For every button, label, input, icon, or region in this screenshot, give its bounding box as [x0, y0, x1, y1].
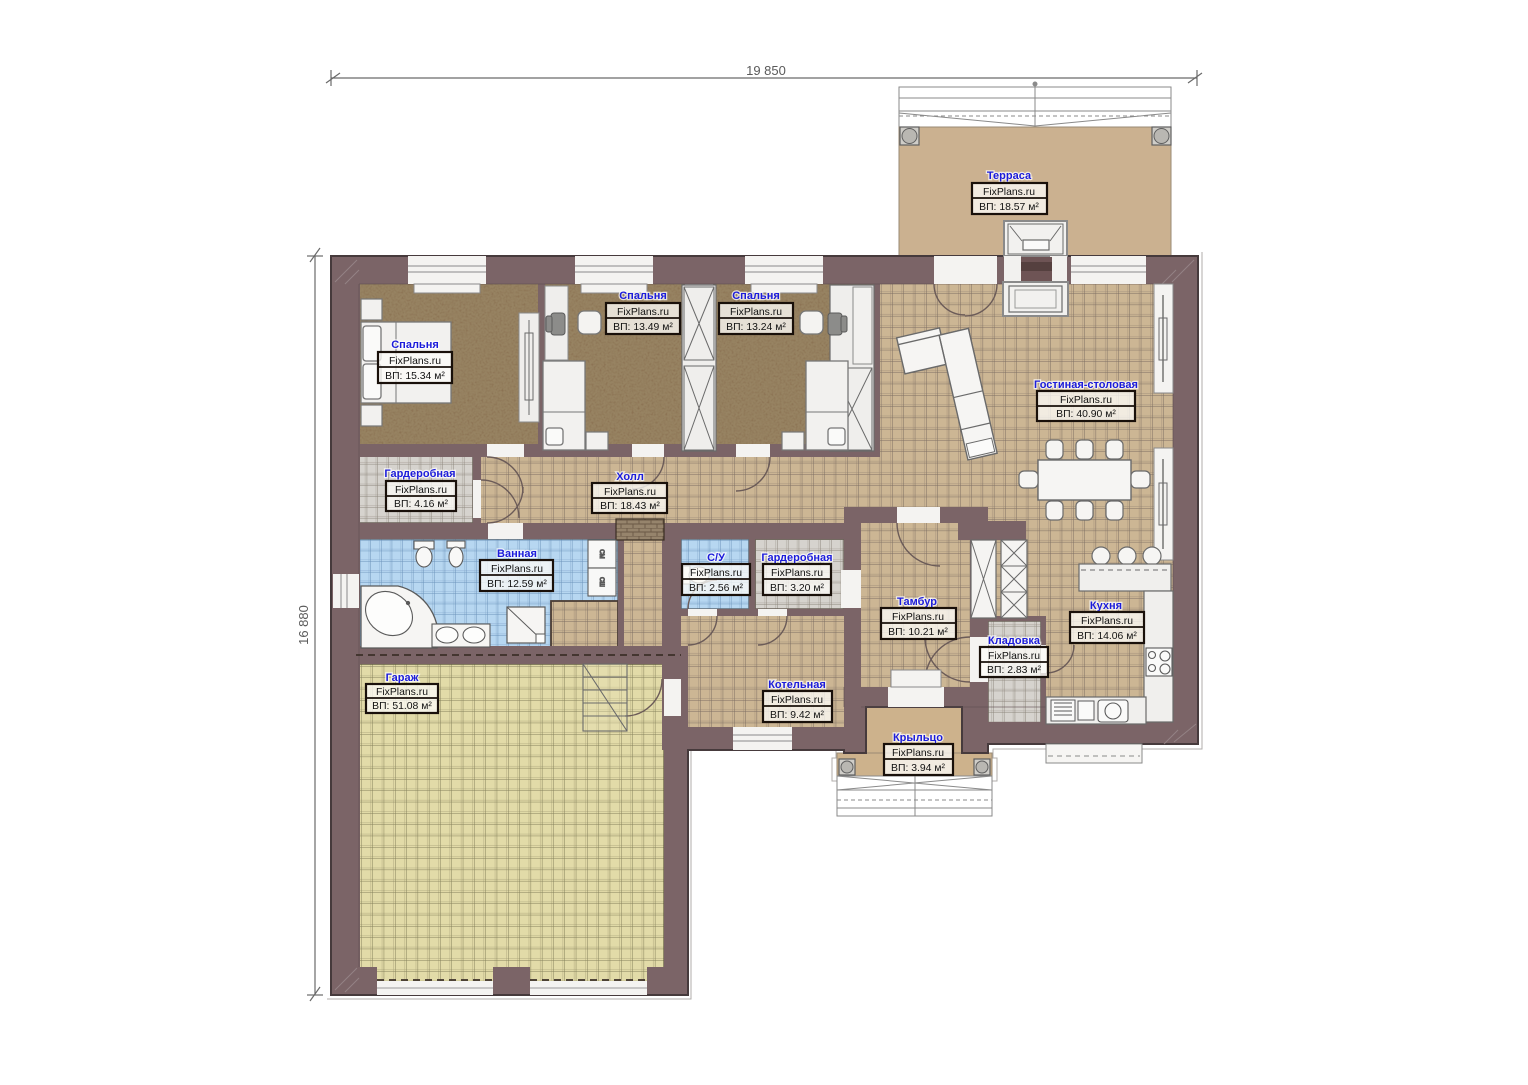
- svg-text:FixPlans.ru: FixPlans.ru: [395, 485, 447, 496]
- svg-text:СШ: СШ: [598, 577, 604, 587]
- svg-text:16 880: 16 880: [296, 605, 311, 645]
- svg-text:ВП: 40.90 м²: ВП: 40.90 м²: [1056, 409, 1116, 420]
- svg-text:ВП: 3.94 м²: ВП: 3.94 м²: [891, 763, 945, 774]
- svg-text:FixPlans.ru: FixPlans.ru: [690, 568, 742, 579]
- svg-text:FixPlans.ru: FixPlans.ru: [617, 307, 669, 318]
- svg-text:FixPlans.ru: FixPlans.ru: [491, 564, 543, 575]
- svg-text:СМ: СМ: [598, 549, 604, 558]
- svg-text:FixPlans.ru: FixPlans.ru: [1060, 395, 1112, 406]
- svg-text:Терраса: Терраса: [987, 170, 1032, 182]
- svg-text:ВП: 51.08 м²: ВП: 51.08 м²: [372, 701, 432, 712]
- svg-text:ВП: 10.21 м²: ВП: 10.21 м²: [888, 627, 948, 638]
- svg-text:ВП: 15.34 м²: ВП: 15.34 м²: [385, 371, 445, 382]
- svg-text:ВП: 18.43 м²: ВП: 18.43 м²: [600, 501, 660, 512]
- svg-text:Котельная: Котельная: [768, 679, 826, 691]
- svg-text:Холл: Холл: [616, 471, 644, 483]
- svg-text:Спальня: Спальня: [732, 290, 780, 302]
- svg-text:FixPlans.ru: FixPlans.ru: [771, 695, 823, 706]
- svg-text:ВП: 13.24 м²: ВП: 13.24 м²: [726, 322, 786, 333]
- svg-text:ВП: 2.83 м²: ВП: 2.83 м²: [987, 665, 1041, 676]
- svg-text:Кладовка: Кладовка: [988, 635, 1041, 647]
- svg-text:ВП: 18.57 м²: ВП: 18.57 м²: [979, 202, 1039, 213]
- svg-text:FixPlans.ru: FixPlans.ru: [892, 612, 944, 623]
- svg-text:FixPlans.ru: FixPlans.ru: [389, 356, 441, 367]
- svg-text:FixPlans.ru: FixPlans.ru: [771, 568, 823, 579]
- svg-text:FixPlans.ru: FixPlans.ru: [1081, 616, 1133, 627]
- svg-text:ВП: 14.06 м²: ВП: 14.06 м²: [1077, 631, 1137, 642]
- svg-text:ВП: 9.42 м²: ВП: 9.42 м²: [770, 710, 824, 721]
- svg-text:Крыльцо: Крыльцо: [893, 732, 943, 744]
- svg-text:Тамбур: Тамбур: [897, 596, 937, 608]
- svg-text:ВП: 13.49 м²: ВП: 13.49 м²: [613, 322, 673, 333]
- svg-text:ВП: 2.56 м²: ВП: 2.56 м²: [689, 583, 743, 594]
- svg-text:Спальня: Спальня: [619, 290, 667, 302]
- svg-text:FixPlans.ru: FixPlans.ru: [730, 307, 782, 318]
- svg-text:Гардеробная: Гардеробная: [384, 468, 455, 480]
- svg-text:С/У: С/У: [707, 552, 725, 564]
- svg-text:Гараж: Гараж: [386, 672, 419, 684]
- svg-text:ВП: 4.16 м²: ВП: 4.16 м²: [394, 499, 448, 510]
- svg-text:FixPlans.ru: FixPlans.ru: [604, 487, 656, 498]
- svg-text:Кухня: Кухня: [1090, 600, 1122, 612]
- svg-text:Гостиная-столовая: Гостиная-столовая: [1034, 379, 1138, 391]
- svg-text:FixPlans.ru: FixPlans.ru: [376, 687, 428, 698]
- svg-text:FixPlans.ru: FixPlans.ru: [983, 187, 1035, 198]
- svg-text:Гардеробная: Гардеробная: [761, 552, 832, 564]
- svg-text:ВП: 3.20 м²: ВП: 3.20 м²: [770, 583, 824, 594]
- svg-text:19 850: 19 850: [746, 63, 786, 78]
- svg-text:Ванная: Ванная: [497, 548, 537, 560]
- svg-text:FixPlans.ru: FixPlans.ru: [988, 651, 1040, 662]
- svg-text:Спальня: Спальня: [391, 339, 439, 351]
- svg-text:ВП: 12.59 м²: ВП: 12.59 м²: [487, 579, 547, 590]
- svg-text:FixPlans.ru: FixPlans.ru: [892, 748, 944, 759]
